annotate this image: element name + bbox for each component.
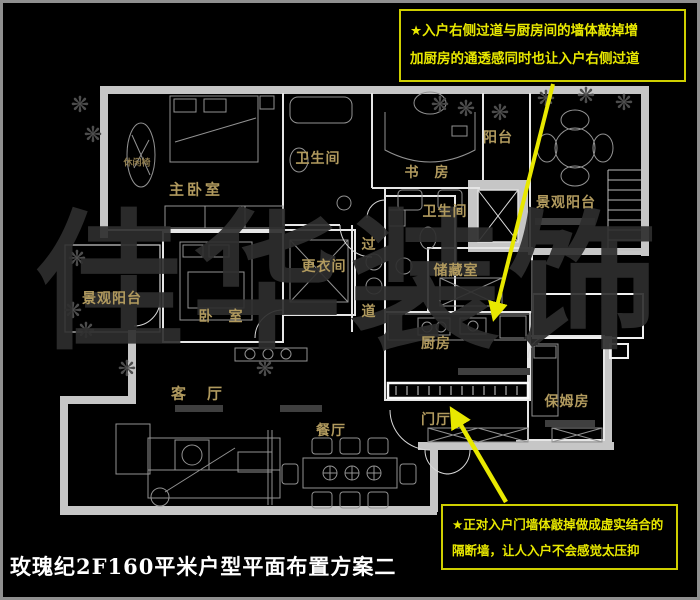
annotation-box-top: ★入户右侧过道与厨房间的墙体敲掉增 加厨房的通透感同时也让入户右侧过道 bbox=[399, 9, 686, 82]
annotation-top-line2: 加厨房的通透感同时也让入户右侧过道 bbox=[410, 45, 675, 73]
plan-title: 玫瑰纪2F160平米户型平面布置方案二 bbox=[10, 551, 396, 581]
annotation-bottom-line1: ★正对入户门墙体敲掉做成虚实结合的 bbox=[452, 512, 667, 538]
arrow-top-annotation bbox=[494, 84, 553, 318]
annotation-box-bottom: ★正对入户门墙体敲掉做成虚实结合的 隔断墙，让人入户不会感觉太压抑 bbox=[441, 504, 678, 570]
annotation-bottom-line2: 隔断墙，让人入户不会感觉太压抑 bbox=[452, 538, 667, 564]
annotation-top-line1: ★入户右侧过道与厨房间的墙体敲掉增 bbox=[410, 17, 675, 45]
arrow-bottom-annotation bbox=[452, 410, 506, 502]
floorplan-canvas: 佳 华 装 饰 bbox=[0, 0, 700, 600]
